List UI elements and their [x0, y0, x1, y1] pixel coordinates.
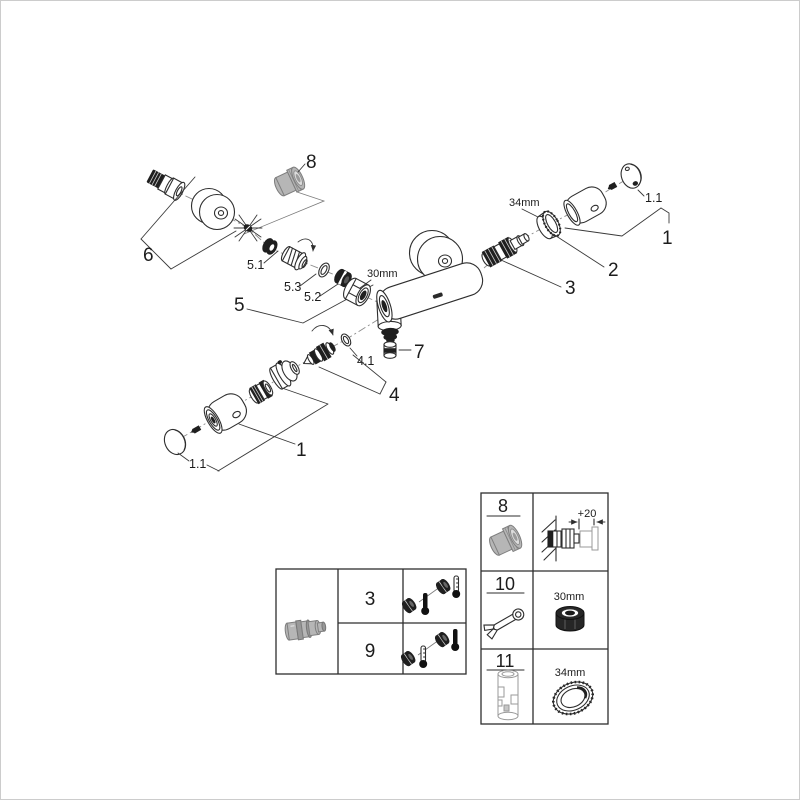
label-nut-size: 30mm — [367, 268, 398, 280]
sleeve-tool-icon — [498, 670, 518, 720]
connector-part-5 — [279, 239, 313, 273]
thermometer-icon — [421, 593, 429, 615]
extension-icon — [486, 524, 524, 560]
s-union-part-6 — [145, 167, 187, 202]
handle-sleeve-part-1-right — [561, 183, 611, 228]
o-ring-part-5-3 — [317, 261, 332, 278]
label-part-5-3: 5.3 — [284, 280, 301, 294]
variant-3-icons — [401, 576, 461, 615]
check-valve-part-4 — [300, 325, 338, 370]
nut-30mm-icon — [556, 607, 584, 632]
cartridge-icon — [284, 617, 327, 641]
handle-screw-left — [190, 426, 200, 435]
exploded-parts-diagram: 8 6 — [1, 1, 799, 799]
thermometer-icon — [419, 646, 427, 668]
o-ring-part-4-1: 4.1 — [339, 332, 374, 368]
thermo-cap-icon — [400, 650, 417, 668]
thermometer-icon — [451, 629, 459, 651]
accessory-row-10-dim: 30mm — [554, 591, 585, 603]
accessory-row-8-id: 8 — [498, 496, 508, 516]
outlet-rings — [381, 328, 399, 343]
ring-34mm-icon — [548, 676, 598, 720]
wall-escutcheon-part-6 — [192, 189, 235, 230]
label-part-1-1-left: 1.1 — [189, 457, 206, 471]
accessory-row-10-id: 10 — [495, 574, 515, 594]
label-part-5-2: 5.2 — [304, 290, 321, 304]
handle-cap-part-1-1-left: 1.1 — [160, 426, 219, 471]
label-part-5-1: 5.1 — [247, 258, 264, 272]
accessory-row-11-id: 11 — [496, 651, 515, 671]
accessory-table: 8 — [481, 493, 608, 724]
label-part-1-1-right: 1.1 — [645, 191, 662, 205]
label-part-2: 2 — [608, 260, 619, 281]
label-part-8: 8 — [306, 152, 317, 173]
extension-part-8: 8 — [244, 152, 324, 234]
knurled-adapter-part-left — [247, 379, 275, 406]
turn-arrow-icon — [312, 325, 333, 335]
label-part-5: 5 — [234, 295, 245, 316]
handle-sleeve-part-1-left — [201, 389, 252, 436]
turn-arrow-icon — [298, 239, 313, 251]
label-part-1-left: 1 — [296, 440, 307, 461]
variant-table: 3 9 — [276, 569, 466, 674]
variant-row-9-id: 9 — [365, 641, 376, 662]
variant-9-icons — [400, 629, 460, 668]
label-ring-size: 34mm — [509, 197, 540, 209]
label-part-7: 7 — [414, 342, 425, 363]
label-part-1-right: 1 — [662, 228, 673, 249]
handle-cap-part-1-1-right: 1.1 — [618, 161, 663, 205]
label-part-3: 3 — [565, 278, 576, 299]
thermo-cap-icon — [435, 578, 452, 596]
accessory-row-8-dim: +20 — [578, 508, 597, 520]
thermometer-icon — [452, 576, 460, 598]
label-part-4: 4 — [389, 385, 400, 406]
label-part-6: 6 — [143, 245, 154, 266]
manual-page: 8 6 — [0, 0, 800, 800]
handle-hub-part-left — [266, 354, 304, 391]
thermo-cap-icon — [434, 631, 451, 649]
variant-row-3-id: 3 — [365, 589, 376, 610]
wrench-icon — [482, 605, 527, 640]
accessory-row-11-dim: 34mm — [555, 667, 586, 679]
wall-install-diagram: +20 — [542, 508, 605, 561]
aerator-part-7: 7 — [384, 342, 425, 363]
seal-part-5-1 — [260, 237, 279, 257]
